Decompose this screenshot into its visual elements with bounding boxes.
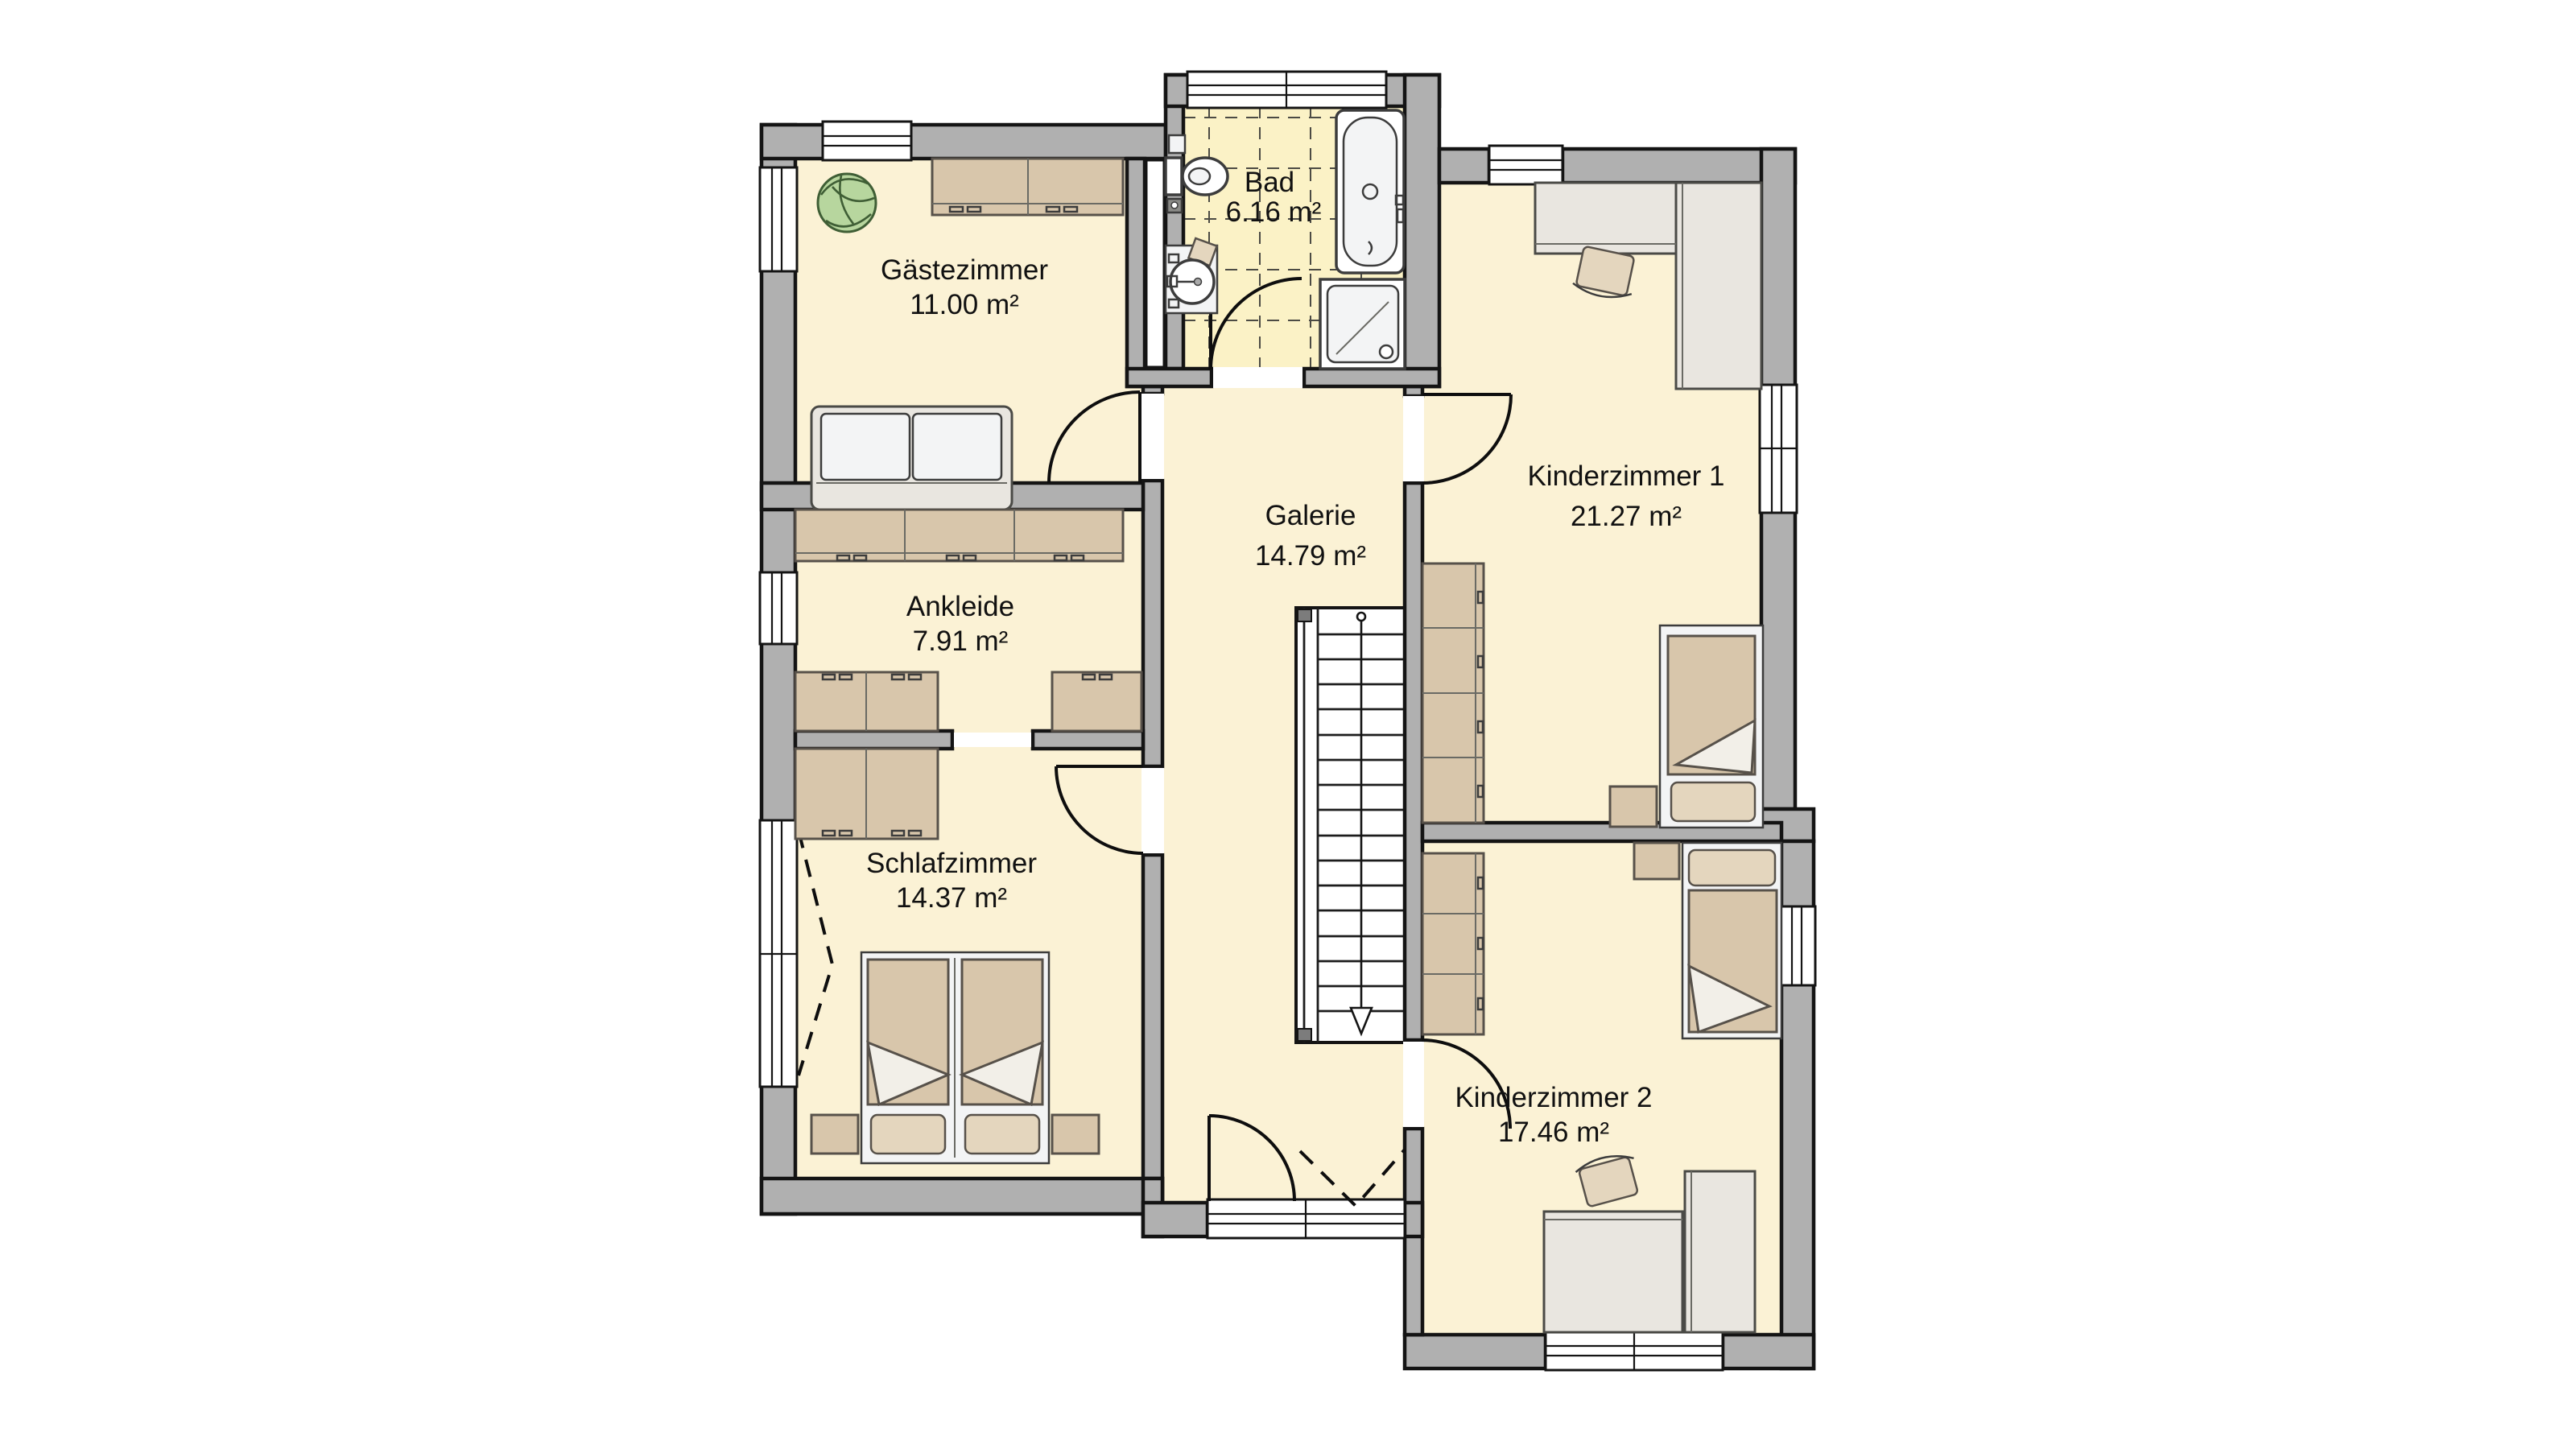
double-bed xyxy=(861,952,1049,1163)
room-label-kinderzimmer-1: Kinderzimmer 1 xyxy=(1527,460,1724,492)
wardrobe-tall xyxy=(1422,853,1484,1034)
room-label-schlafzimmer: Schlafzimmer xyxy=(866,848,1037,879)
room-area-kinderzimmer-2: 17.46 m² xyxy=(1498,1117,1609,1148)
shower xyxy=(1320,279,1405,369)
wardrobe-right-upper xyxy=(1052,672,1141,731)
window-child1-top xyxy=(1489,146,1563,184)
installation-shaft xyxy=(1146,160,1164,367)
window-guest-top xyxy=(823,122,911,160)
washbasin xyxy=(1166,238,1217,313)
window-gallery-bottom xyxy=(1207,1199,1405,1238)
room-area-galerie: 14.79 m² xyxy=(1255,540,1366,572)
floor-plan-page: Gästezimmer 11.00 m² Bad 6.16 m² Kinderz… xyxy=(0,0,2576,1449)
room-area-ankleide: 7.91 m² xyxy=(913,625,1009,657)
room-area-gaestezimmer: 11.00 m² xyxy=(910,289,1019,320)
wardrobe-left-lower xyxy=(795,749,938,839)
room-area-schlafzimmer: 14.37 m² xyxy=(896,882,1007,914)
room-area-bad: 6.16 m² xyxy=(1226,196,1322,228)
plant-icon xyxy=(818,174,876,232)
bathtub xyxy=(1336,110,1404,273)
nightstand xyxy=(811,1115,858,1154)
desk xyxy=(1544,1212,1682,1332)
window-child2-bottom xyxy=(1546,1331,1723,1370)
window-bath-top xyxy=(1187,72,1386,108)
cabinet xyxy=(1685,1171,1755,1332)
wardrobe xyxy=(932,159,1123,215)
single-bed xyxy=(1660,625,1763,828)
room-label-kinderzimmer-2: Kinderzimmer 2 xyxy=(1455,1082,1652,1113)
floor-plan-drawing: Gästezimmer 11.00 m² Bad 6.16 m² Kinderz… xyxy=(0,0,2576,1449)
single-bed xyxy=(1682,843,1781,1038)
window-child1-right xyxy=(1760,385,1797,513)
room-area-kinderzimmer-1: 21.27 m² xyxy=(1571,501,1682,532)
passage-dressing-sleeping xyxy=(954,733,1031,747)
nightstand xyxy=(1052,1115,1099,1154)
wardrobe-left-upper xyxy=(795,672,938,731)
nightstand xyxy=(1610,786,1657,827)
nightstand xyxy=(1634,843,1679,879)
wardrobe-top xyxy=(795,510,1123,561)
room-label-ankleide: Ankleide xyxy=(906,591,1014,622)
window-dressing-left xyxy=(760,572,797,644)
sofa xyxy=(811,407,1012,510)
window-child2-right xyxy=(1780,906,1815,985)
window-guest-left xyxy=(760,167,797,271)
room-label-bad: Bad xyxy=(1245,167,1294,198)
wardrobe-tall xyxy=(1422,563,1484,823)
window-sleeping-left xyxy=(760,820,797,1087)
staircase xyxy=(1296,608,1405,1042)
room-label-gaestezimmer: Gästezimmer xyxy=(881,254,1048,286)
room-label-galerie: Galerie xyxy=(1265,500,1356,531)
